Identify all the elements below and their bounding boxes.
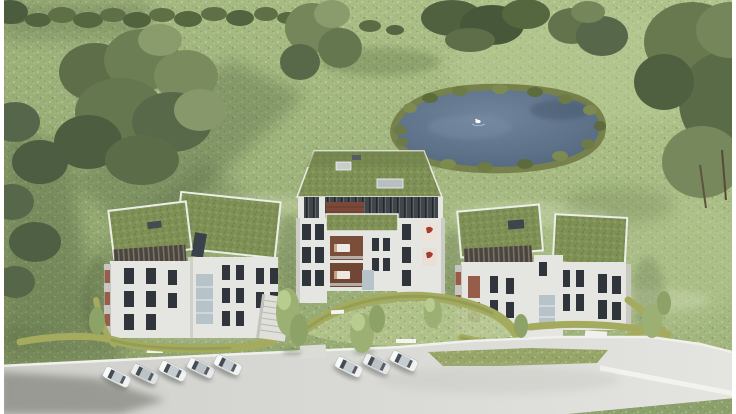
scene-svg: [0, 0, 736, 414]
left-stairwell-glazing: [196, 274, 213, 324]
center-wing-green-roof: [326, 214, 398, 231]
right-border-bar: [732, 0, 736, 414]
garden-bench-2: [396, 339, 416, 343]
right-wing-green-roof: [553, 214, 627, 266]
entrance-path: [300, 344, 327, 358]
center-skylight-2: [377, 179, 403, 188]
garden-bench-1: [331, 310, 344, 315]
building-left: [104, 192, 281, 353]
left-border-bar: [0, 0, 4, 414]
center-entrance-glazing: [362, 270, 374, 290]
building-center: [296, 151, 445, 303]
right-penthouse-skylight: [508, 219, 525, 229]
center-right-tower-windows: [402, 224, 411, 286]
left-side-warm-windows: [105, 270, 111, 326]
center-roof-vent: [352, 155, 361, 160]
rendered-image: [0, 0, 736, 414]
center-skylight-1: [336, 162, 351, 170]
